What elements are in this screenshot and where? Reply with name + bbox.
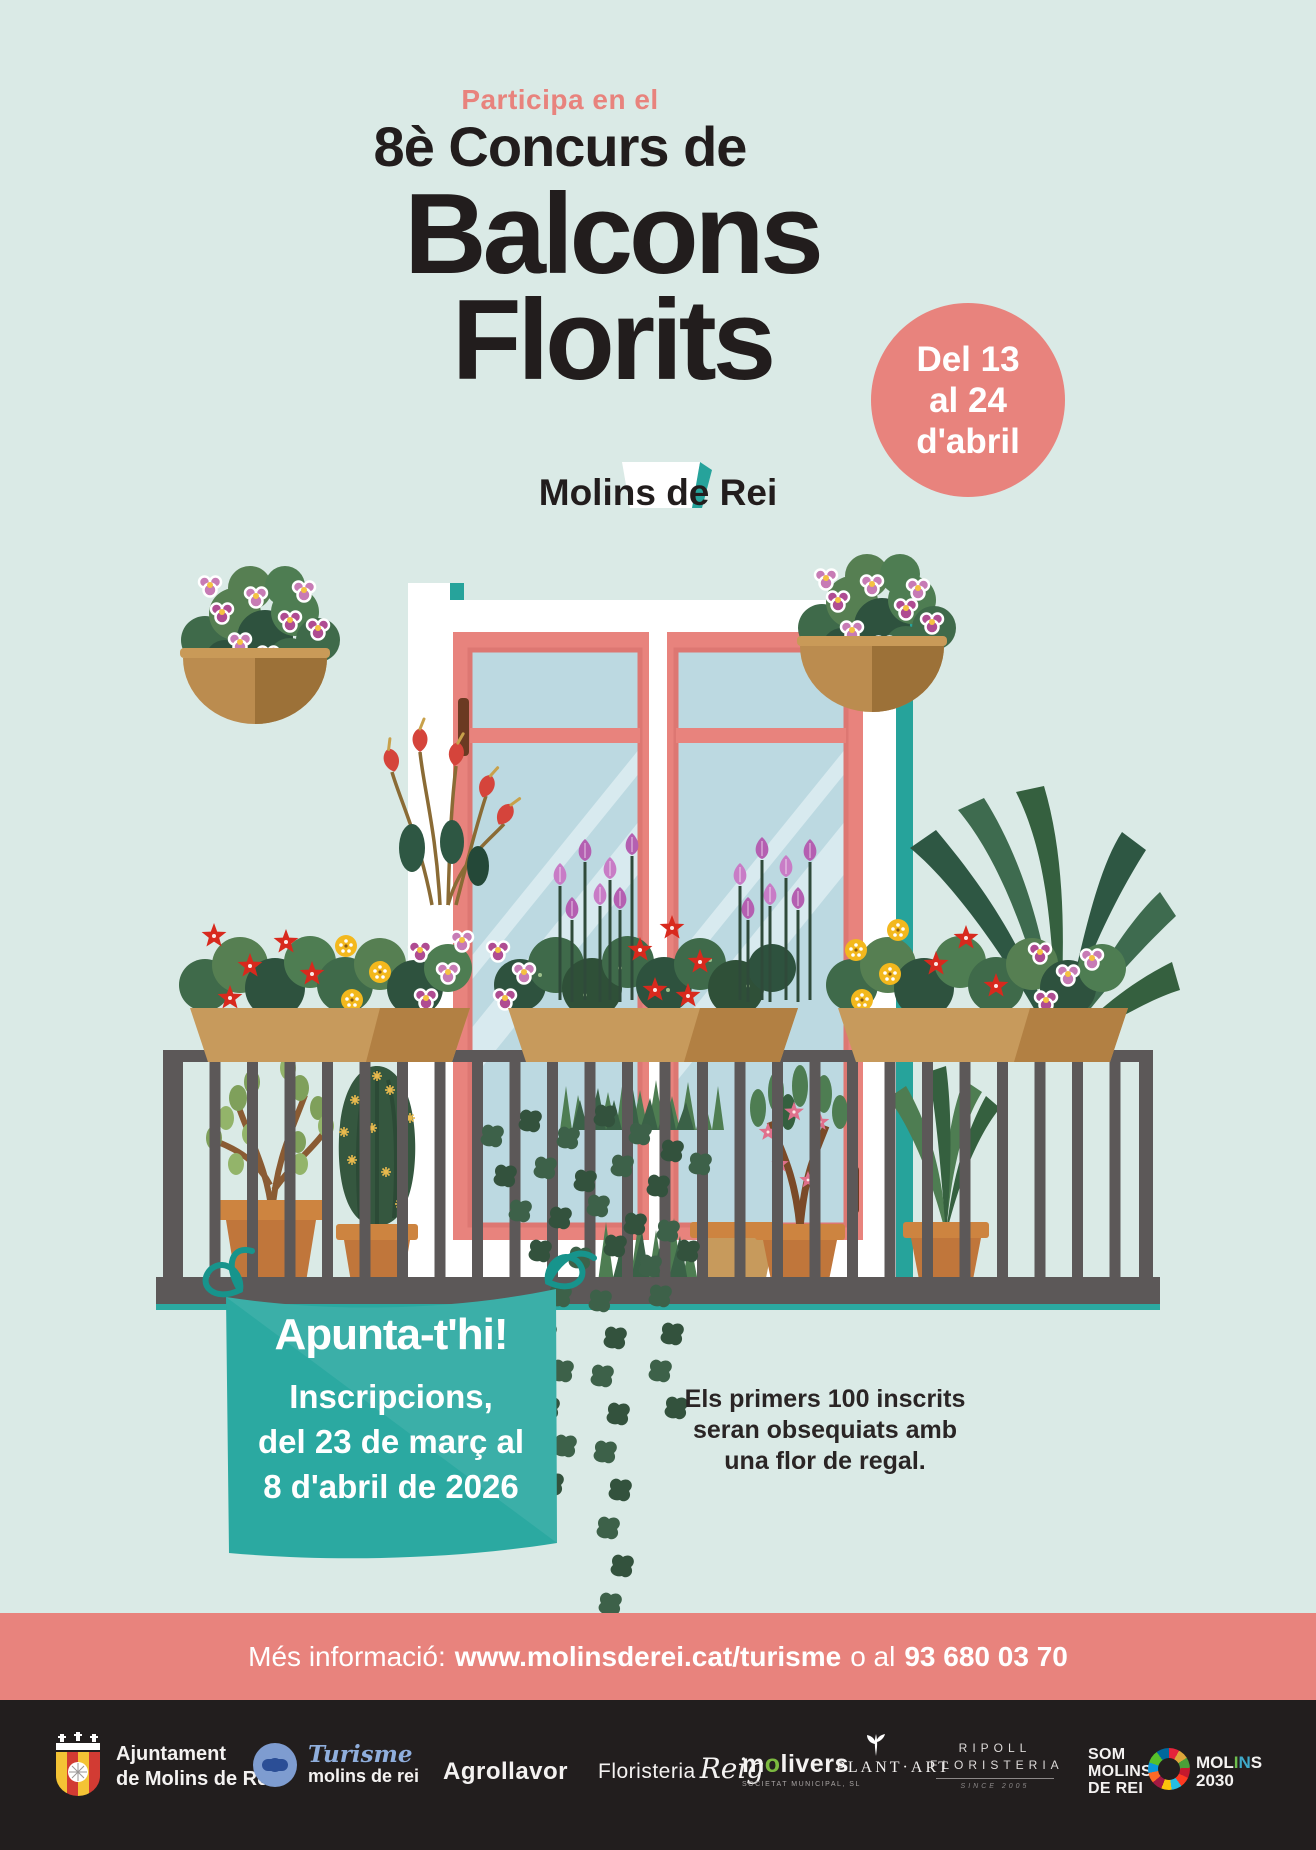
banner-line2: del 23 de març al — [226, 1419, 556, 1464]
sdg-ring-icon — [1148, 1748, 1190, 1790]
info-prefix: Més informació: — [248, 1641, 446, 1673]
ripoll-divider — [936, 1778, 1054, 1779]
prize-note-line2: seran obsequiats amb — [655, 1415, 995, 1446]
plant-art-logo: PLANT·ART — [836, 1732, 916, 1777]
ajuntament-logo: Ajuntament de Molins de Rei — [52, 1732, 274, 1802]
prize-note-line1: Els primers 100 inscrits — [655, 1384, 995, 1415]
banner-line1: Inscripcions, — [226, 1374, 556, 1419]
title-line: 8è Concurs de — [374, 114, 747, 179]
turisme-text: Turisme molins de rei — [308, 1744, 419, 1786]
turisme-icon — [252, 1742, 298, 1788]
info-url: www.molinsderei.cat/turisme — [455, 1641, 841, 1673]
prize-note-line3: una flor de regal. — [655, 1446, 995, 1477]
info-phone: 93 680 03 70 — [904, 1641, 1068, 1673]
kicker: Participa en el — [461, 84, 658, 116]
som-molins-logo: SOM MOLINS DE REI — [1088, 1746, 1152, 1797]
logo-footer: Ajuntament de Molins de Rei Turisme moli… — [0, 1700, 1316, 1850]
date-badge-line2: al 24 — [929, 380, 1007, 421]
info-bar: Més informació: www.molinsderei.cat/turi… — [0, 1613, 1316, 1700]
banner-title: Apunta-t'hi! — [226, 1310, 556, 1360]
ripoll-floristeria-logo: RIPOLL FLORISTERIA SINCE 2005 — [930, 1740, 1060, 1790]
ajuntament-text: Ajuntament de Molins de Rei — [116, 1742, 274, 1792]
title-big-2: Florits — [452, 284, 772, 398]
turisme-logo: Turisme molins de rei — [252, 1742, 419, 1788]
agrollavor-logo: Agrollavor — [443, 1758, 568, 1786]
hanging-basket-left — [180, 566, 340, 724]
info-middle: o al — [850, 1641, 895, 1673]
date-badge: Del 13 al 24 d'abril — [871, 303, 1065, 497]
subtitle: Molins de Rei — [539, 472, 777, 514]
banner-line3: 8 d'abril de 2026 — [226, 1464, 556, 1509]
floristeria-reig-logo: Floristeria Reig — [598, 1752, 764, 1785]
banner-text: Apunta-t'hi! Inscripcions, del 23 de mar… — [226, 1310, 556, 1509]
ajuntament-shield-icon — [52, 1732, 104, 1802]
date-badge-line1: Del 13 — [916, 339, 1019, 380]
hanging-basket-right — [797, 554, 956, 712]
date-badge-line3: d'abril — [916, 421, 1020, 462]
title-big-1: Balcons — [404, 178, 819, 292]
poster: Participa en el 8è Concurs de Balcons Fl… — [0, 0, 1316, 1850]
prize-note: Els primers 100 inscrits seran obsequiat… — [655, 1384, 995, 1477]
molins-2030-logo: MOLINS 2030 — [1196, 1754, 1262, 1790]
plant-art-icon — [865, 1732, 887, 1756]
